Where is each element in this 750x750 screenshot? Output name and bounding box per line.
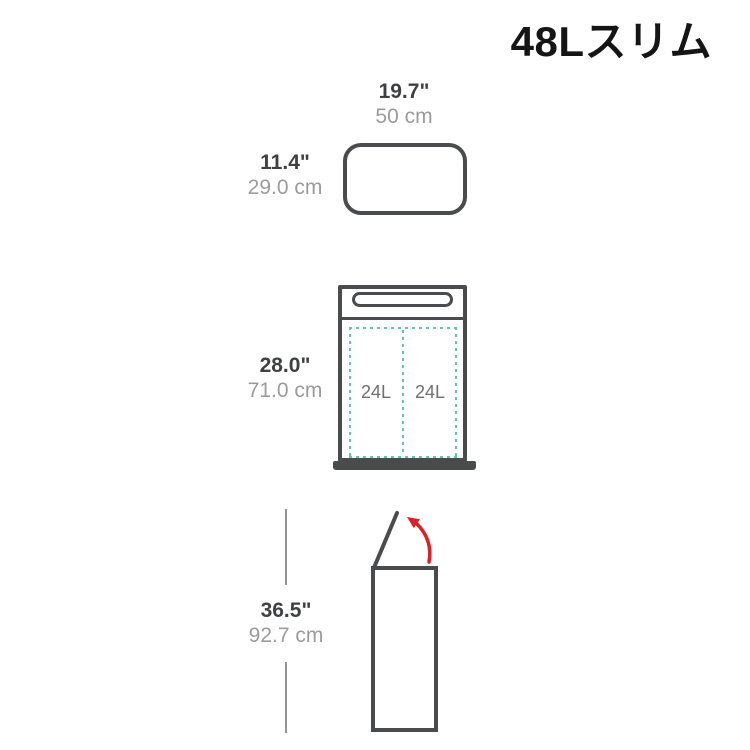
front-view-base — [333, 461, 476, 470]
width-inches-label: 19.7" — [375, 79, 432, 104]
height-inches-label: 28.0" — [248, 353, 323, 378]
liner-dashed-edge-top — [349, 327, 457, 329]
bucket-divider-dashed-line — [402, 330, 404, 455]
lid-separator-line — [338, 317, 467, 320]
left-bucket-capacity: 24L — [349, 327, 403, 458]
lid-open-arrow-arc — [417, 524, 430, 562]
lid-handle — [352, 292, 453, 307]
top-view-outline — [343, 143, 467, 215]
right-bucket-capacity: 24L — [403, 327, 457, 458]
liner-dashed-edge-right — [455, 327, 457, 458]
width-cm-label: 50 cm — [375, 104, 432, 129]
front-view-height-dimension: 28.0" 71.0 cm — [248, 353, 323, 403]
product-dimension-diagram: 48Lスリム 19.7" 50 cm 11.4" 29.0 cm 28.0" 7… — [0, 0, 750, 750]
liner-dashed-edge-bottom — [349, 456, 457, 458]
total-height-inches-label: 36.5" — [249, 598, 324, 623]
open-lid-graphic — [355, 500, 445, 575]
liner-capacity-area: 24L 24L — [349, 327, 457, 458]
depth-cm-label: 29.0 cm — [248, 175, 323, 200]
side-view-outline — [371, 566, 438, 732]
total-height-cm-label: 92.7 cm — [249, 623, 324, 648]
top-view-depth-dimension: 11.4" 29.0 cm — [248, 150, 323, 200]
page-title: 48Lスリム — [511, 8, 712, 69]
front-view-outline: 24L 24L — [338, 285, 467, 462]
dimension-line-lower-segment — [285, 662, 287, 733]
top-view-width-dimension: 19.7" 50 cm — [375, 79, 432, 129]
liner-dashed-edge-left — [349, 327, 351, 458]
open-lid-line — [373, 513, 397, 570]
dimension-line-upper-segment — [285, 509, 287, 585]
depth-inches-label: 11.4" — [248, 150, 323, 175]
side-view-height-dimension: 36.5" 92.7 cm — [249, 598, 324, 648]
height-cm-label: 71.0 cm — [248, 378, 323, 403]
